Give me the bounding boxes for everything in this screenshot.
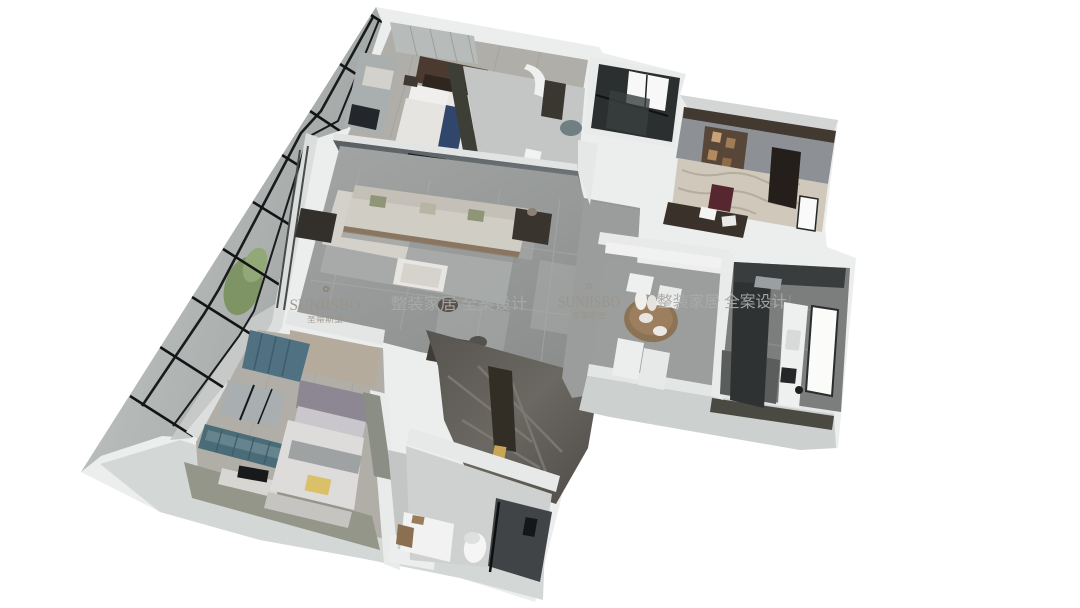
svg-text:整装家居 全案设计: 整装家居 全案设计 <box>391 295 528 313</box>
svg-text:整装家居 全案设计: 整装家居 全案设计 <box>657 293 787 311</box>
svg-text:SUNIISBO: SUNIISBO <box>290 297 361 314</box>
svg-text:✿: ✿ <box>322 284 330 294</box>
svg-text:圣蒂斯堡: 圣蒂斯堡 <box>572 310 607 320</box>
svg-text:圣蒂斯堡: 圣蒂斯堡 <box>307 314 344 324</box>
svg-text:✿: ✿ <box>585 281 593 291</box>
svg-text:SUNIISBO: SUNIISBO <box>558 294 620 311</box>
